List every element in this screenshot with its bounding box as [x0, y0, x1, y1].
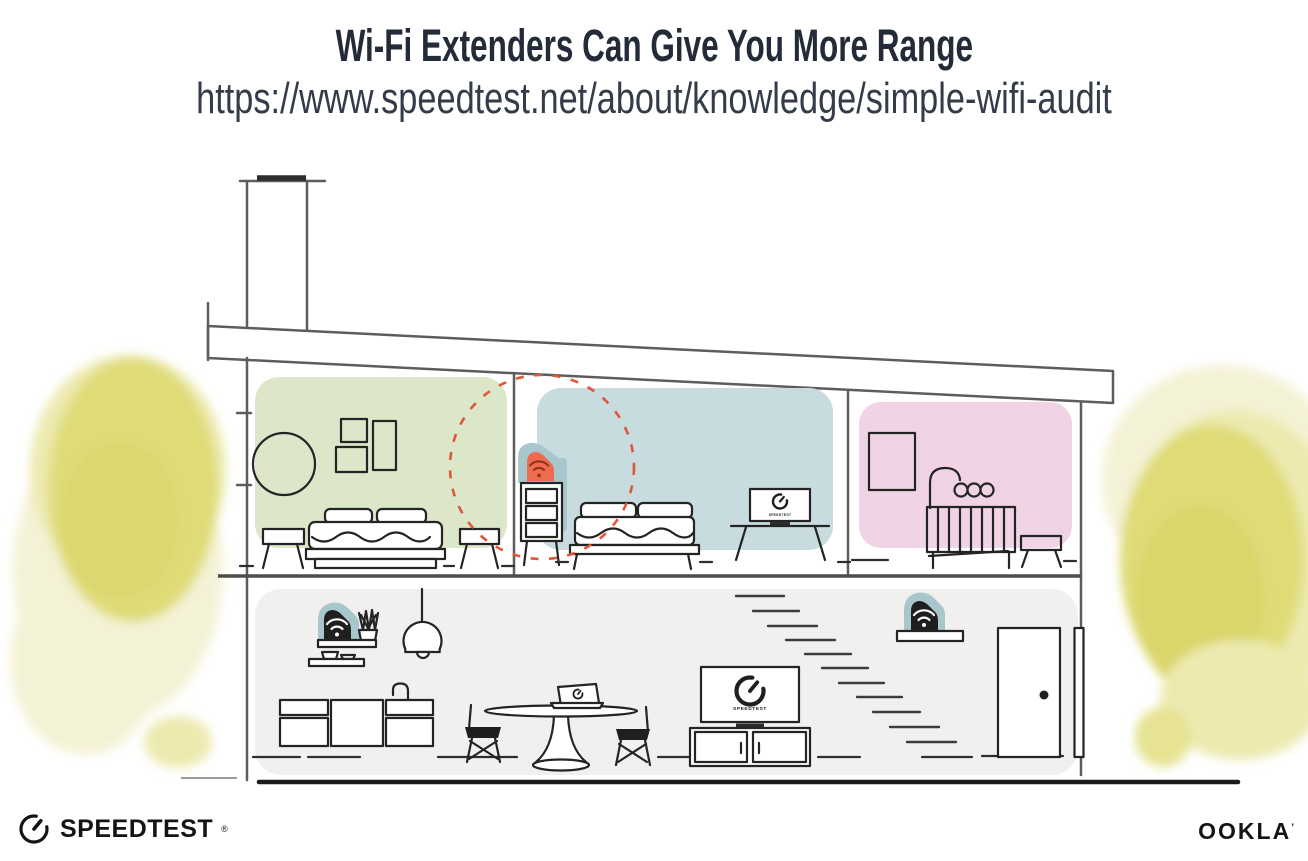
ookla-reg-mark: ’ [1291, 822, 1294, 833]
left-tree-foliage [10, 355, 226, 768]
page-title: Wi-Fi Extenders Can Give You More Range [335, 20, 972, 72]
speedtest-wordmark: SPEEDTEST [60, 815, 213, 844]
speedtest-reg-mark: ® [221, 824, 228, 834]
living-tv: SPEEDTEST [701, 667, 799, 728]
bed-2 [570, 503, 699, 569]
nursery [852, 402, 1076, 568]
ookla-wordmark: OOKLA [1198, 818, 1291, 844]
living-tv-screen-label: SPEEDTEST [733, 706, 767, 712]
blue-bedroom: SPEEDTEST [518, 388, 850, 569]
speedtest-gauge-icon [16, 811, 52, 847]
speedtest-logo: SPEEDTEST® [16, 811, 228, 847]
page-subtitle-url: https://www.speedtest.net/about/knowledg… [0, 74, 1308, 124]
dresser [521, 483, 562, 565]
nightstand-right [460, 529, 499, 568]
door-knob [1040, 691, 1049, 700]
tv-console [690, 728, 810, 766]
tv-screen-label: SPEEDTEST [769, 513, 792, 517]
page-header: Wi-Fi Extenders Can Give You More Range … [0, 0, 1308, 124]
chimney [240, 178, 325, 345]
ground-floor: SPEEDTEST [253, 589, 1084, 775]
front-door [998, 628, 1060, 757]
ookla-logo: OOKLA’ [1198, 818, 1294, 845]
house-cutaway-illustration: SPEEDTEST [0, 0, 1308, 861]
shelf-board [318, 640, 376, 647]
right-tree-foliage [1102, 365, 1308, 767]
side-window [1075, 628, 1084, 757]
nightstand-left [263, 529, 304, 568]
footer: SPEEDTEST® OOKLA’ [0, 807, 1308, 851]
shelf-board-2 [897, 631, 963, 641]
laptop [551, 684, 603, 708]
